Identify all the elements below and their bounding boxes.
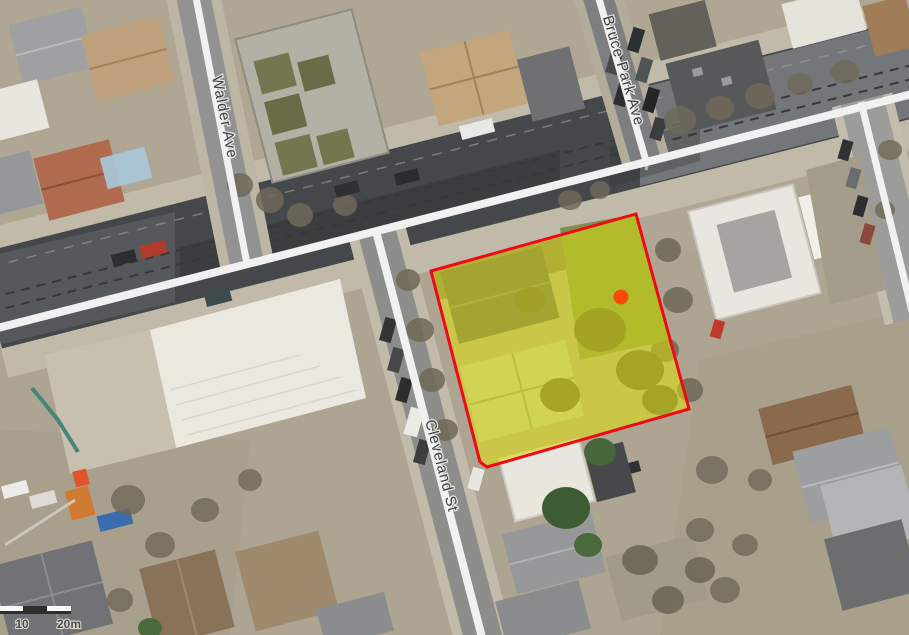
map-canvas[interactable]: Walder Ave Bruce Park Ave Cleveland St 1… <box>0 0 909 635</box>
scale-bar-mid-label: 10 <box>15 617 29 631</box>
location-marker-dot[interactable] <box>614 290 629 305</box>
scale-bar-end-label: 20m <box>57 617 81 631</box>
